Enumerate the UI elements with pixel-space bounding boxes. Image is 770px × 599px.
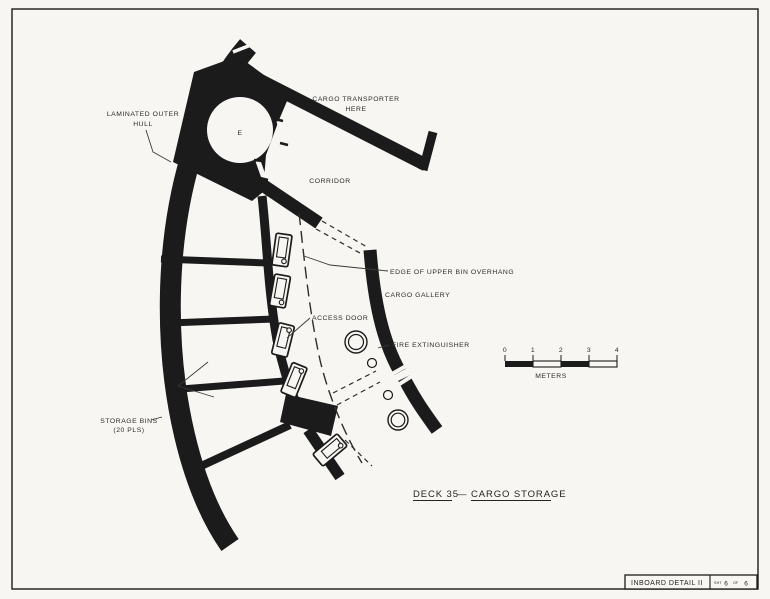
scale-tick-3: 3 (587, 347, 591, 354)
title-separator: — (457, 489, 467, 500)
scale-segment-3 (561, 361, 589, 367)
gallery-wall-lower (404, 378, 437, 430)
corridor-wall-end-stub (423, 132, 433, 170)
title-subject: CARGO STORAGE (471, 489, 566, 500)
scale-segment-4 (589, 361, 617, 367)
label-storage-bins-2: (20 PLS) (113, 427, 144, 434)
sheet-prefix: SHT (714, 581, 722, 585)
scale-segment-2 (533, 361, 561, 367)
label-storage-bins: STORAGE BINS (100, 418, 157, 425)
scale-unit-label: METERS (535, 373, 567, 380)
label-corridor: CORRIDOR (309, 178, 350, 185)
drawing-title: DECK 35 — CARGO STORAGE (413, 489, 566, 501)
scale-bar: 0 1 2 3 4 METERS (503, 347, 619, 380)
label-laminated-outer-hull: LAMINATED OUTER (107, 111, 179, 118)
title-block: INBOARD DETAIL II SHT 6 OF 6 (625, 575, 757, 589)
wall-fixture-1 (368, 359, 377, 368)
scale-tick-1: 1 (531, 347, 535, 354)
scale-tick-2: 2 (559, 347, 563, 354)
label-cargo-transporter: CARGO TRANSPORTER (312, 96, 399, 103)
sheet-total: 6 (744, 581, 748, 588)
hull-leader (146, 130, 171, 162)
door-panel (272, 233, 292, 267)
sheet-number: 6 (724, 581, 728, 588)
fire-extinguisher-1-inner (349, 335, 364, 350)
label-laminated-outer-hull-2: HULL (133, 121, 153, 128)
sheet-of: OF (733, 581, 739, 585)
title-deck: DECK 35 (413, 489, 459, 500)
label-edge-of-upper-bin-overhang: EDGE OF UPPER BIN OVERHANG (390, 269, 514, 276)
blueprint-sheet: E (0, 0, 770, 599)
label-cargo-gallery: CARGO GALLERY (385, 292, 450, 299)
label-cargo-transporter-2: HERE (345, 106, 366, 113)
fire-extinguisher-2-inner (391, 413, 405, 427)
deck-plan-drawing: E (0, 0, 770, 599)
scale-segment-1 (505, 361, 533, 367)
label-fire-extinguisher: FIRE EXTINGUISHER (392, 342, 470, 349)
scale-tick-4: 4 (615, 347, 619, 354)
transporter-pad-letter: E (237, 130, 242, 137)
wall-fixture-2 (384, 391, 393, 400)
title-block-name: INBOARD DETAIL II (631, 580, 703, 587)
scale-ticks (505, 355, 617, 361)
label-access-door: ACCESS DOOR (312, 315, 368, 322)
scale-tick-0: 0 (503, 347, 507, 354)
